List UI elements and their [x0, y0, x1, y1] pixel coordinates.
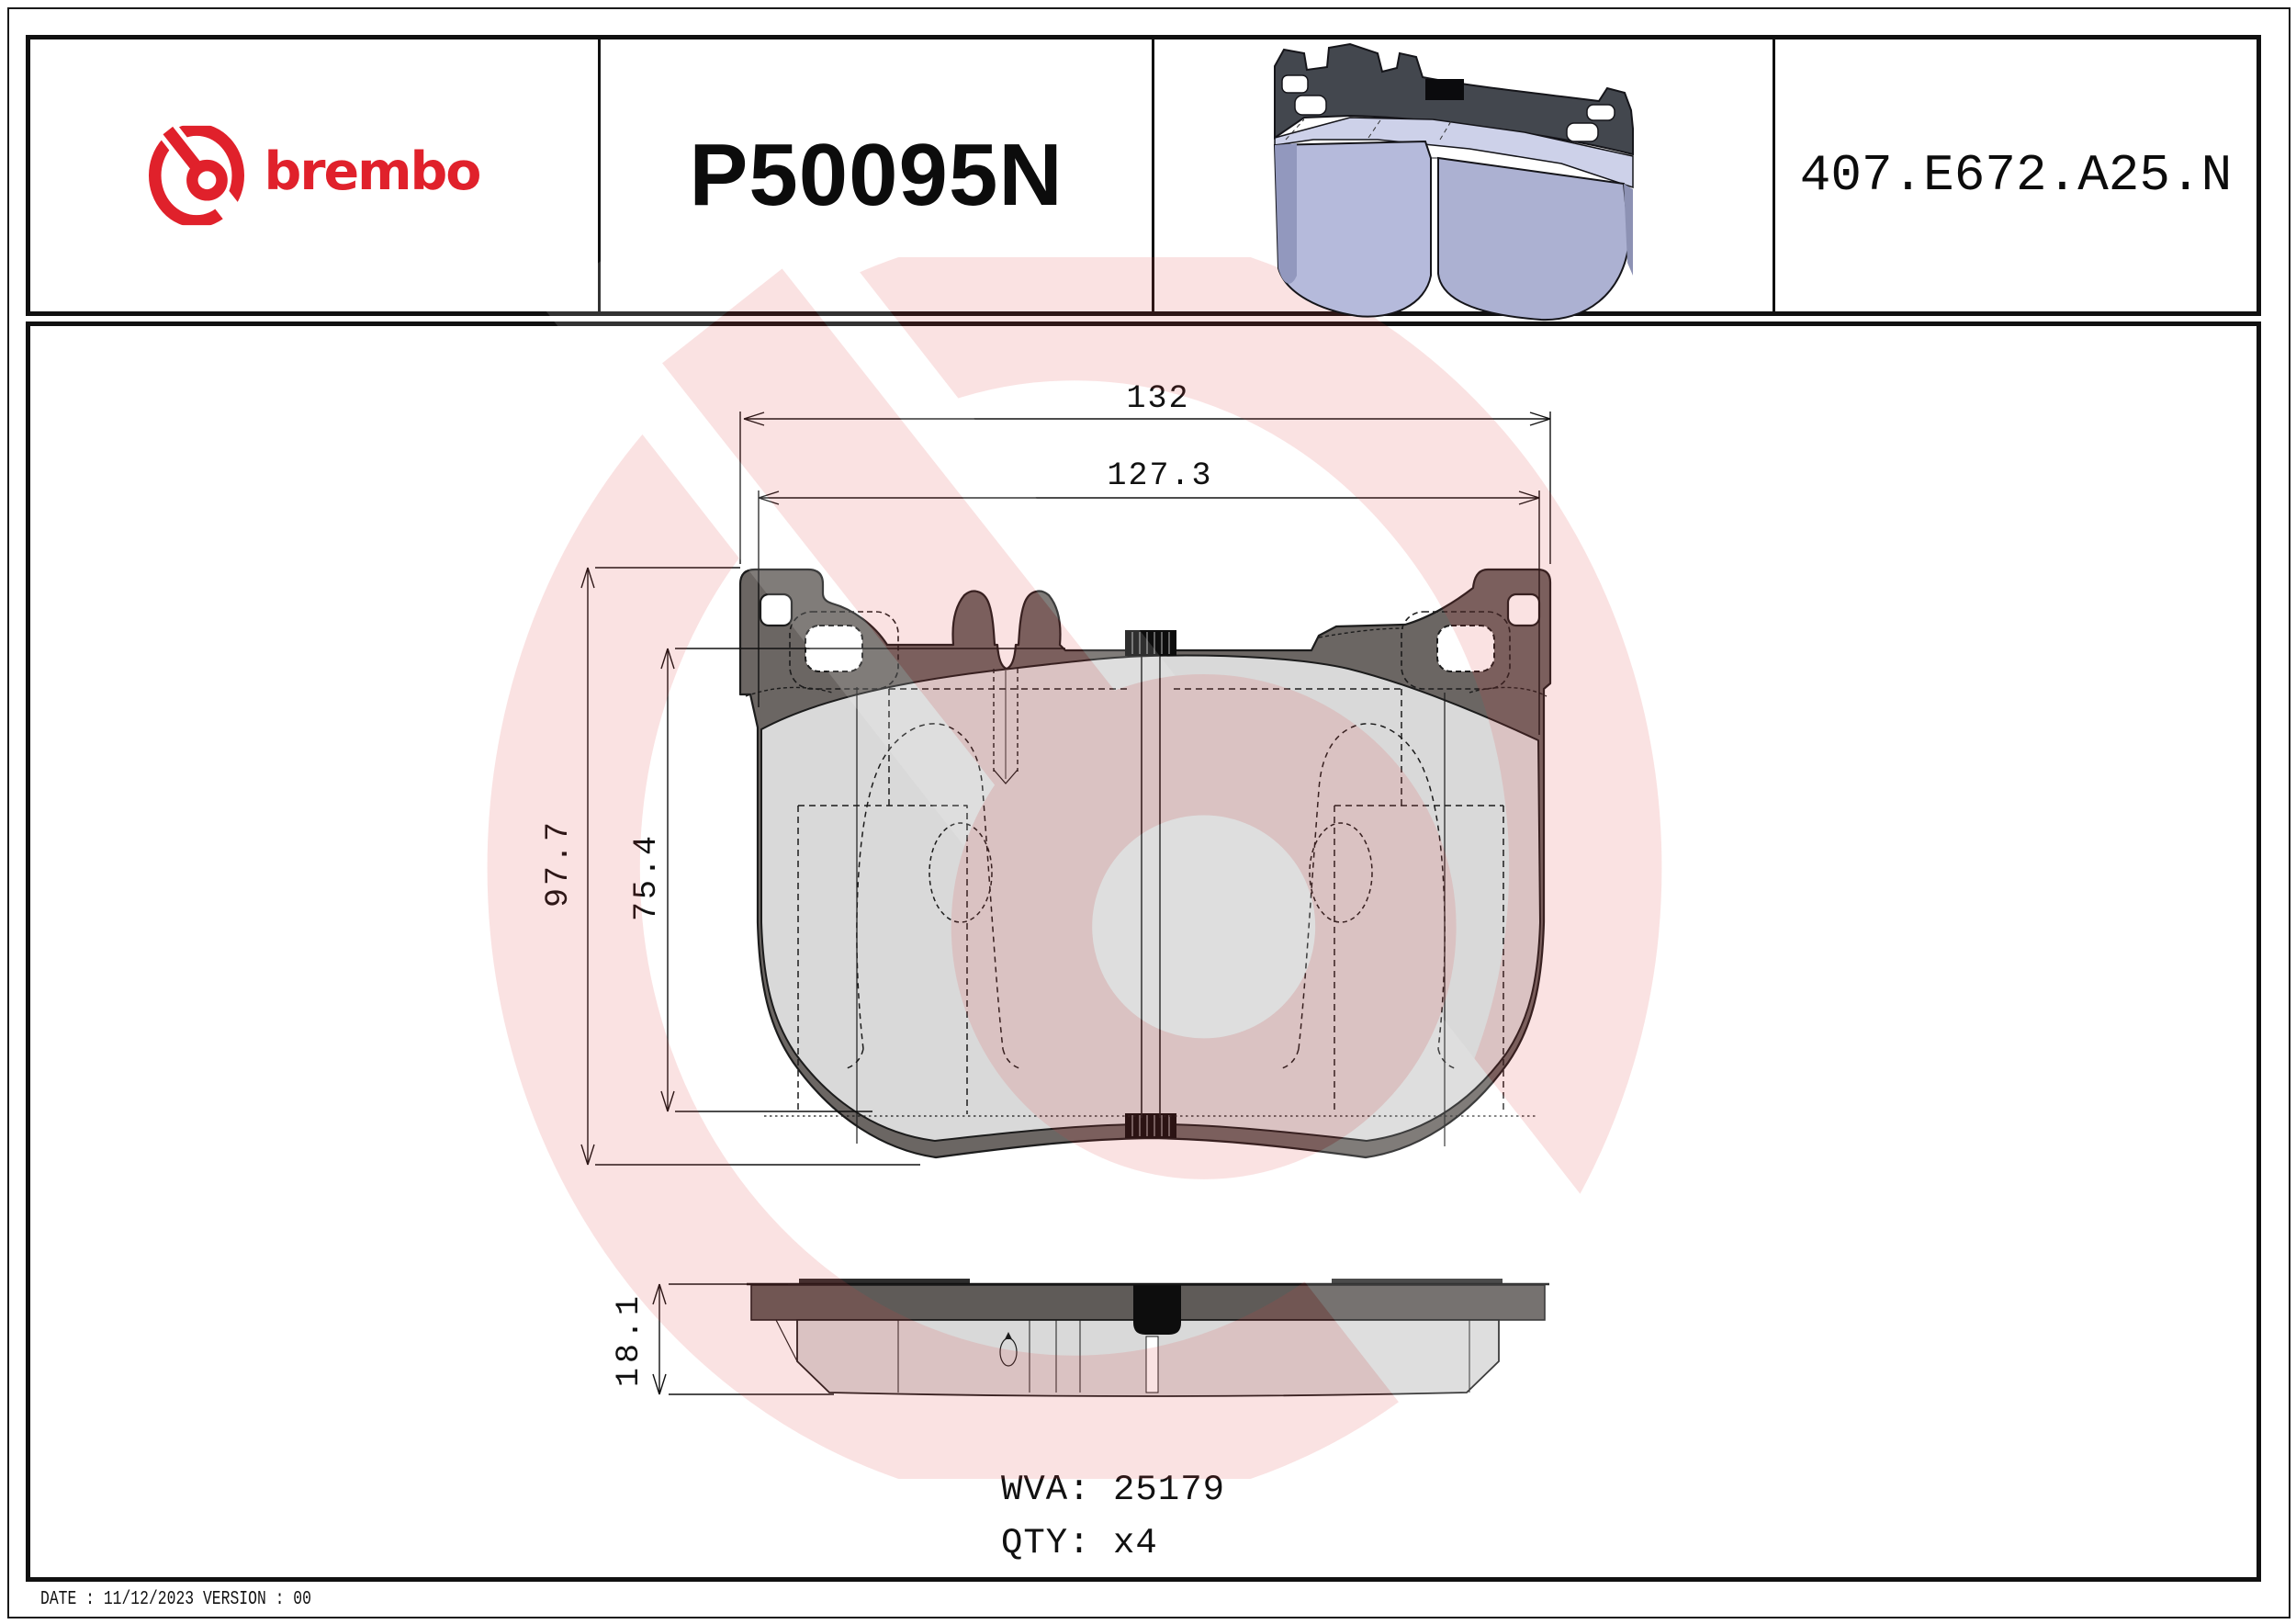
- version-label: VERSION :: [203, 1589, 284, 1610]
- brembo-mark-icon: [149, 125, 244, 226]
- catalog-code: 407.E672.A25.N: [1800, 146, 2232, 205]
- brand-wordmark: brembo: [264, 141, 480, 202]
- header-cell-catalog-code: 407.E672.A25.N: [1773, 39, 2257, 311]
- datasheet-page: brembo P50095N 407.E672.A25.N: [0, 0, 2296, 1624]
- brembo-logo: brembo: [149, 125, 480, 226]
- clip-hole: [1282, 75, 1308, 93]
- date-value: 11/12/2023: [104, 1589, 194, 1610]
- drawing-area-border: [26, 321, 2261, 1582]
- version-value: 00: [293, 1589, 311, 1610]
- clip-hole: [1295, 96, 1326, 115]
- wear-tab-3d: [1425, 79, 1464, 100]
- clip-hole: [1567, 123, 1598, 141]
- header-cell-logo: brembo: [30, 39, 598, 311]
- date-label: DATE :: [40, 1589, 95, 1610]
- part-number: P50095N: [689, 125, 1063, 226]
- brake-pads-photo: [1263, 17, 1644, 323]
- footer-info: DATE : 11/12/2023 VERSION : 00: [40, 1589, 311, 1610]
- clip-hole: [1587, 105, 1615, 120]
- header-cell-part-number: P50095N: [598, 39, 1152, 311]
- header: brembo P50095N 407.E672.A25.N: [26, 35, 2261, 316]
